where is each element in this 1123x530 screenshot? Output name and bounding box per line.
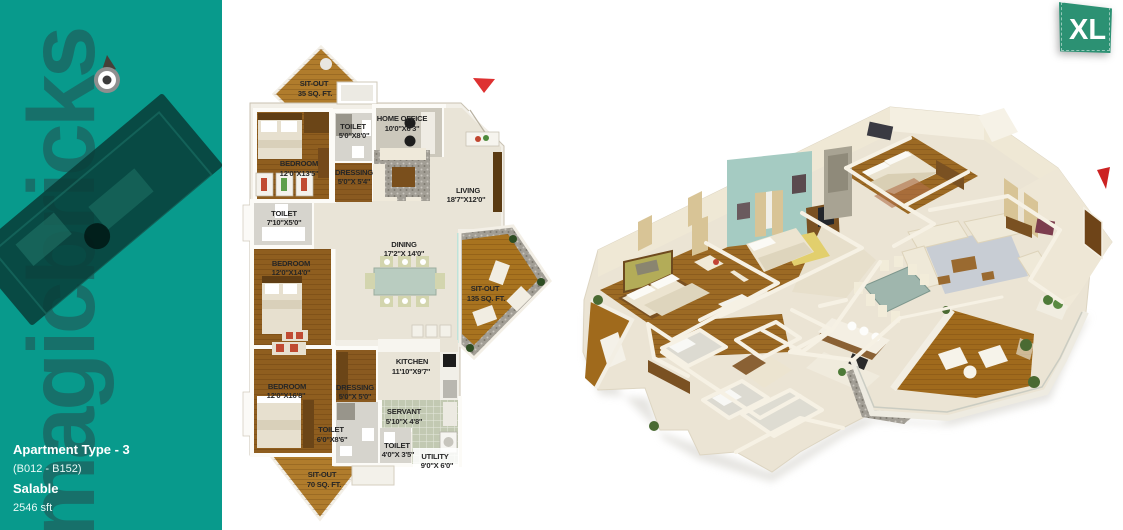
svg-text:HOME OFFICE: HOME OFFICE <box>377 114 428 123</box>
svg-text:18'7''X12'0'': 18'7''X12'0'' <box>447 195 486 204</box>
svg-text:SIT-OUT: SIT-OUT <box>300 79 329 88</box>
svg-text:DINING: DINING <box>391 240 417 249</box>
svg-text:TOILET: TOILET <box>384 441 410 450</box>
svg-text:5'0''X8'0'': 5'0''X8'0'' <box>339 131 370 140</box>
svg-text:135 SQ. FT.: 135 SQ. FT. <box>467 294 505 303</box>
svg-text:BEDROOM: BEDROOM <box>268 382 306 391</box>
svg-text:BEDROOM: BEDROOM <box>280 159 318 168</box>
svg-text:SIT-OUT: SIT-OUT <box>308 470 337 479</box>
svg-text:10'0''X6'3'': 10'0''X6'3'' <box>385 124 420 133</box>
svg-text:70 SQ. FT.: 70 SQ. FT. <box>307 480 341 489</box>
svg-text:DRESSING: DRESSING <box>336 383 374 392</box>
svg-text:SIT-OUT: SIT-OUT <box>471 284 500 293</box>
svg-text:KITCHEN: KITCHEN <box>396 357 428 366</box>
svg-text:17'2''X 14'0'': 17'2''X 14'0'' <box>384 249 425 258</box>
svg-text:7'10''X5'0'': 7'10''X5'0'' <box>267 218 302 227</box>
svg-text:6'0''X8'6'': 6'0''X8'6'' <box>317 435 348 444</box>
svg-text:12'0''X14'0'': 12'0''X14'0'' <box>272 268 311 277</box>
svg-text:5'0''X 5'0'': 5'0''X 5'0'' <box>339 392 372 401</box>
svg-text:12'0''X13'5'': 12'0''X13'5'' <box>280 169 319 178</box>
svg-text:11'10''X9'7'': 11'10''X9'7'' <box>392 367 431 376</box>
svg-text:TOILET: TOILET <box>318 425 344 434</box>
svg-text:TOILET: TOILET <box>271 209 297 218</box>
svg-text:BEDROOM: BEDROOM <box>272 259 310 268</box>
svg-text:9'0''X 6'0'': 9'0''X 6'0'' <box>421 461 454 470</box>
svg-text:4'0''X 3'5'': 4'0''X 3'5'' <box>382 450 415 459</box>
svg-text:UTILITY: UTILITY <box>421 452 448 461</box>
svg-text:35 SQ. FT.: 35 SQ. FT. <box>298 89 332 98</box>
svg-text:TOILET: TOILET <box>340 122 366 131</box>
svg-text:5'10''X 4'8'': 5'10''X 4'8'' <box>386 417 423 426</box>
svg-text:12'0''X16'8'': 12'0''X16'8'' <box>267 391 306 400</box>
svg-text:LIVING: LIVING <box>456 186 480 195</box>
svg-text:5'0''X 5'4'': 5'0''X 5'4'' <box>338 177 371 186</box>
svg-text:DRESSING: DRESSING <box>335 168 373 177</box>
svg-text:SERVANT: SERVANT <box>387 407 422 416</box>
